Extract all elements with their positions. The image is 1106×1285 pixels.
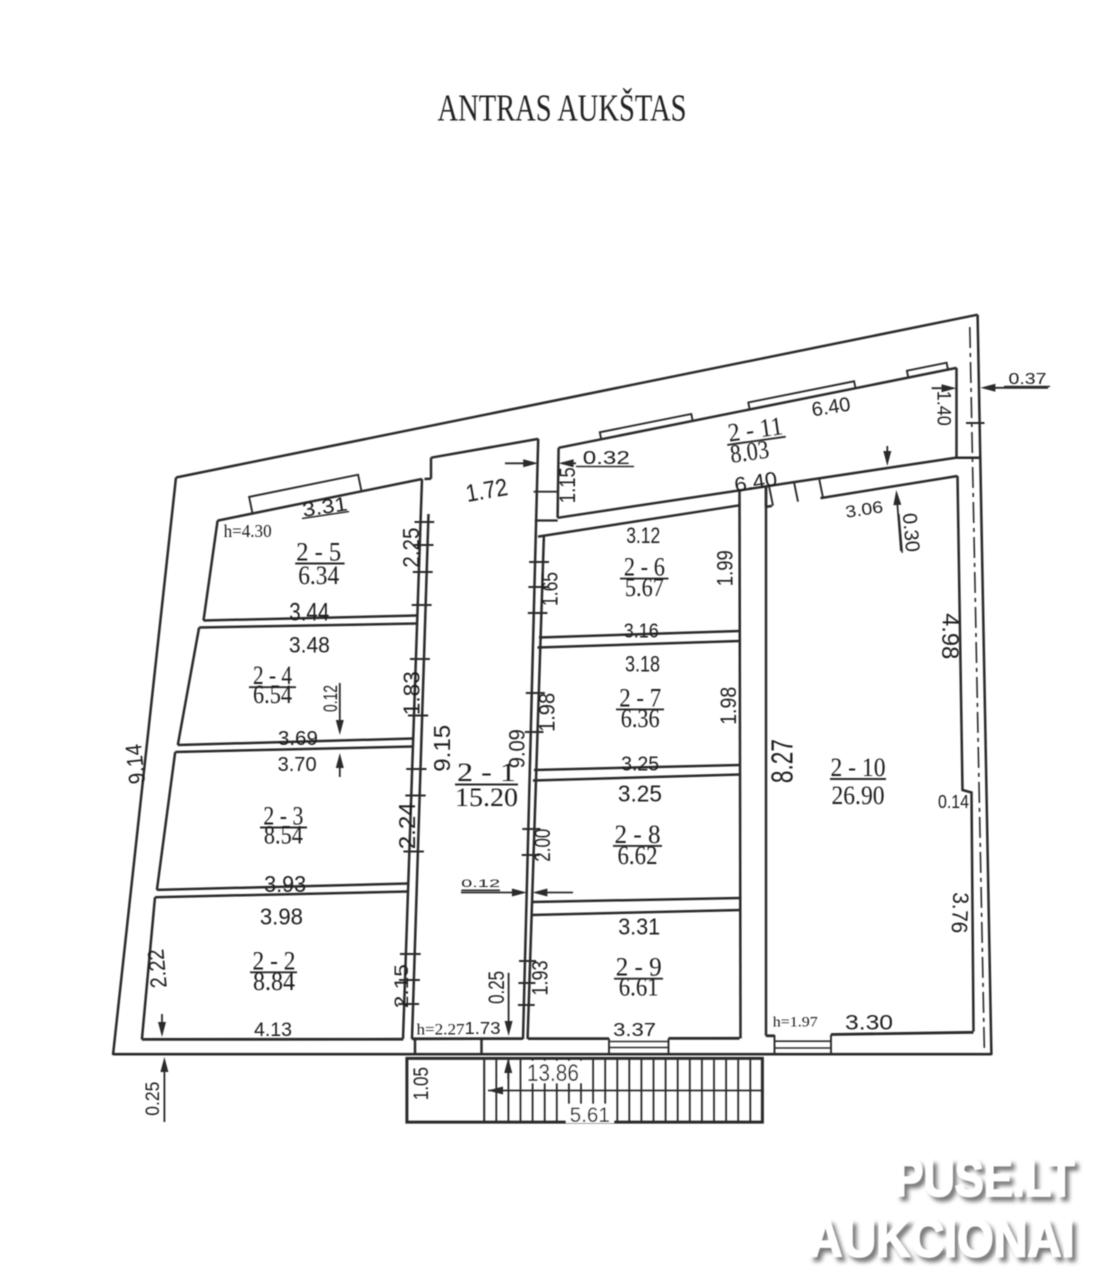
svg-text:3.98: 3.98 [260,904,303,930]
svg-text:5.67: 5.67 [625,573,664,602]
svg-text:h=1.97: h=1.97 [773,1014,818,1030]
svg-text:6.62: 6.62 [618,841,658,870]
svg-text:1.93: 1.93 [528,961,553,996]
svg-text:1.05: 1.05 [409,1067,433,1100]
svg-text:1.98: 1.98 [535,693,560,732]
svg-text:5.61: 5.61 [570,1103,610,1127]
svg-text:4.13: 4.13 [254,1019,292,1041]
svg-text:3.18: 3.18 [625,651,660,676]
svg-text:6.36: 6.36 [621,704,660,733]
svg-text:6.34: 6.34 [298,561,339,590]
svg-text:3.30: 3.30 [845,1012,893,1035]
svg-text:2.25: 2.25 [398,528,424,568]
svg-text:8.84: 8.84 [253,967,295,996]
svg-text:1.73: 1.73 [465,1019,501,1038]
svg-text:3.16: 3.16 [624,620,659,642]
svg-text:0.14: 0.14 [938,792,969,812]
svg-text:0.12: 0.12 [320,685,342,712]
svg-text:8.54: 8.54 [264,820,303,849]
svg-text:2.22: 2.22 [142,948,171,989]
svg-text:26.90: 26.90 [832,781,885,810]
svg-text:0.12: 0.12 [461,878,500,890]
svg-text:2 - 10: 2 - 10 [831,753,886,782]
svg-text:3.25: 3.25 [621,754,659,776]
svg-text:1.98: 1.98 [716,687,741,725]
svg-text:9.14: 9.14 [120,743,150,786]
svg-text:1.65: 1.65 [538,572,563,606]
svg-text:h=4.30: h=4.30 [224,521,272,541]
svg-text:0.25: 0.25 [484,971,509,1004]
svg-text:h=2.27: h=2.27 [417,1022,465,1039]
svg-text:3.48: 3.48 [289,632,330,657]
svg-text:13.86: 13.86 [527,1060,579,1087]
svg-text:0.25: 0.25 [142,1082,164,1116]
svg-text:0.37: 0.37 [1009,371,1047,388]
svg-text:0.32: 0.32 [583,447,630,468]
svg-text:2.15: 2.15 [391,964,413,1008]
svg-text:ANTRAS AUKŠTAS: ANTRAS AUKŠTAS [438,88,687,130]
svg-text:6.61: 6.61 [619,973,659,1002]
svg-text:15.20: 15.20 [455,783,518,812]
svg-text:3.31: 3.31 [618,914,660,940]
svg-text:2.24: 2.24 [394,802,420,849]
svg-text:3.69: 3.69 [278,728,318,750]
svg-text:3.93: 3.93 [264,871,306,897]
svg-text:3.76: 3.76 [947,892,974,934]
svg-text:3.70: 3.70 [278,754,317,776]
svg-text:3.25: 3.25 [618,781,662,807]
svg-text:9.15: 9.15 [429,725,455,772]
svg-text:8.27: 8.27 [764,739,799,783]
svg-text:PUSE.LT: PUSE.LT [895,1149,1075,1208]
svg-text:4.98: 4.98 [936,613,963,659]
svg-text:AUKCIONAI: AUKCIONAI [809,1210,1075,1269]
svg-text:3.12: 3.12 [626,523,660,548]
svg-text:1.83: 1.83 [399,671,425,715]
svg-text:3.44: 3.44 [289,600,329,627]
svg-text:2.00: 2.00 [530,829,555,862]
svg-text:8.03: 8.03 [728,435,771,469]
svg-text:3.37: 3.37 [613,1020,656,1041]
svg-text:1.15: 1.15 [555,467,580,503]
svg-text:1.99: 1.99 [713,550,738,586]
svg-text:1.40: 1.40 [933,391,955,426]
svg-text:6.54: 6.54 [253,680,292,709]
